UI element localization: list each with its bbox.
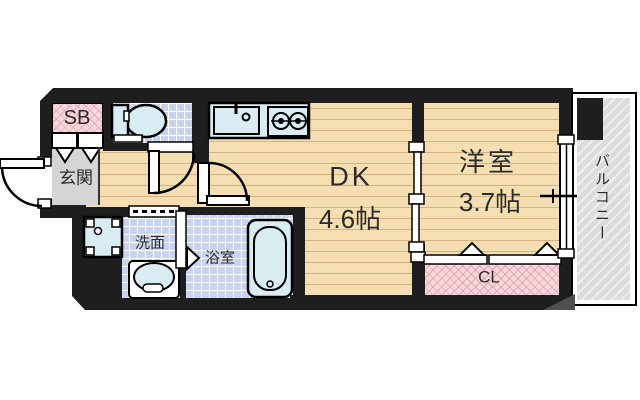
western-room-size-label: 3.7帖 [459,189,521,215]
wall-left-upper [40,103,52,157]
closet-label: CL [478,269,500,286]
wall-entrance-bottom [40,205,86,218]
front-door-jamb-top [38,157,51,166]
toilet-room-floor [113,103,192,143]
balcony-wall-block [577,98,603,140]
washroom-floor [122,217,180,298]
balcony-label: バルコニー [594,153,609,243]
front-door-swing-arc [2,168,42,206]
entrance-label: 玄関 [59,170,93,187]
outside-cutout [40,218,72,310]
wall-toilet-bottom [103,143,148,151]
wall-dk-room-lower [412,244,425,310]
front-door-leaf [0,159,44,168]
wall-top [40,88,563,103]
wall-toilet-dk [192,103,209,163]
dk-size-label: 4.6帖 [319,206,381,232]
dk-label: DK [329,164,373,191]
wall-dk-room-upper [412,103,424,146]
western-room-label: 洋室 [459,149,517,175]
wall-bottom [290,295,575,310]
washroom-label: 洗面 [135,236,165,251]
shoe-box-label: SB [64,108,91,128]
floor-plan: SB 玄関 洗面 浴室 DK 4.6帖 洋室 3.7帖 CL バルコニー [0,0,640,400]
bathroom-label: 浴室 [205,251,235,266]
bathroom-floor [186,215,293,298]
